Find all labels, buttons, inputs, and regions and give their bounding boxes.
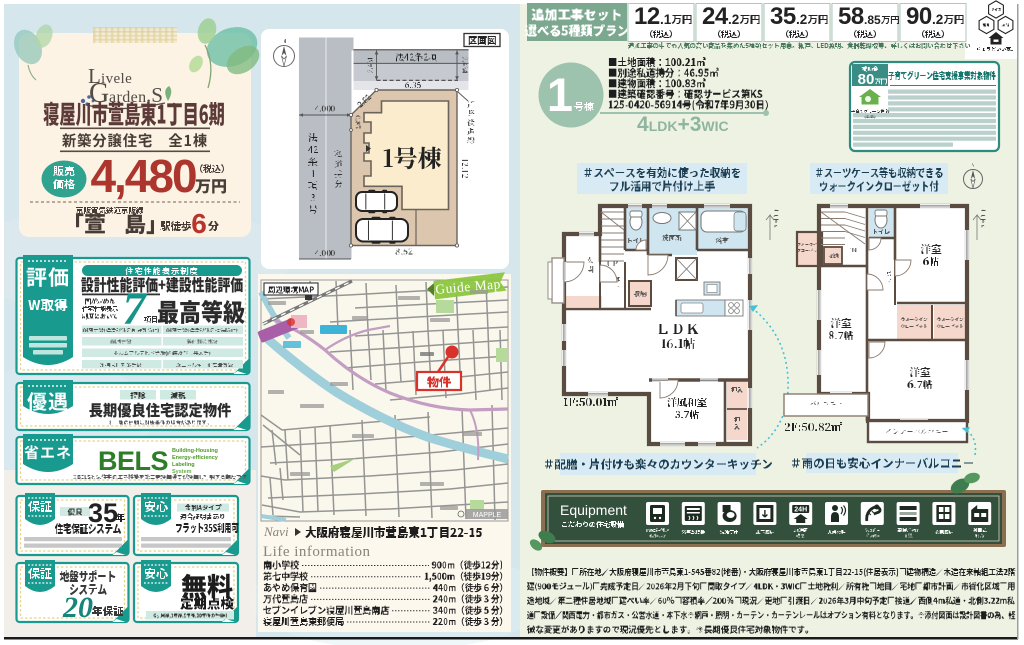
svg-text:4,480: 4,480	[90, 150, 196, 202]
svg-text:.1: .1	[660, 12, 672, 27]
svg-text:Equipment: Equipment	[560, 502, 627, 518]
svg-text:BELS: BELS	[98, 446, 168, 476]
svg-text:35: 35	[88, 498, 118, 528]
svg-text:6: 6	[191, 208, 207, 239]
svg-text:.2: .2	[932, 12, 943, 27]
svg-text:58: 58	[838, 3, 864, 30]
svg-text:Life information: Life information	[263, 544, 371, 560]
svg-text:Navi: Navi	[263, 524, 289, 539]
svg-text:Energy-efficiency: Energy-efficiency	[172, 455, 219, 461]
svg-text:24: 24	[702, 3, 729, 30]
svg-text:1: 1	[547, 68, 573, 121]
svg-text:90: 90	[906, 3, 932, 30]
svg-text:MAPPLE: MAPPLE	[473, 512, 502, 519]
svg-text:12: 12	[634, 3, 660, 30]
svg-text:.2: .2	[796, 12, 807, 27]
svg-text:.85: .85	[864, 13, 881, 27]
svg-text:24H: 24H	[794, 507, 807, 514]
svg-text:80: 80	[858, 71, 875, 88]
svg-text:Building-Housing: Building-Housing	[172, 448, 218, 454]
svg-text:Labeling: Labeling	[172, 462, 195, 468]
svg-text:35: 35	[770, 3, 796, 30]
svg-text:20: 20	[62, 591, 93, 624]
svg-text:.2: .2	[728, 12, 739, 27]
